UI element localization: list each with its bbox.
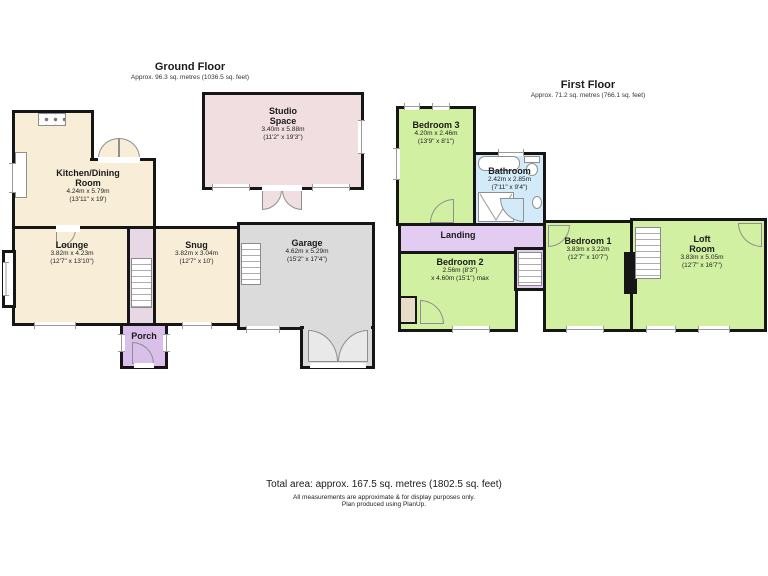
garage-door-opening bbox=[310, 363, 366, 368]
room-imperial-garage: (15'2" x 17'4") bbox=[257, 256, 357, 264]
room-metric-bedroom2: 2.56m (8'3") bbox=[408, 267, 512, 275]
ground-floor-title: Ground Floor Approx. 96.3 sq. metres (10… bbox=[90, 61, 290, 81]
first-floor-subtitle: Approx. 71.2 sq. metres (766.1 sq. feet) bbox=[488, 92, 688, 99]
room-name-landing: Landing bbox=[408, 230, 508, 240]
room-name-bedroom2: Bedroom 2 bbox=[408, 257, 512, 267]
toilet-cistern-icon bbox=[524, 156, 540, 163]
bedroom3-window-left bbox=[393, 148, 400, 180]
room-imperial-bathroom: (7'11" x 9'4") bbox=[473, 184, 546, 192]
kitchen-french-door-right-leaf bbox=[119, 138, 140, 158]
room-label-porch: Porch bbox=[120, 331, 168, 341]
first-floor-staircase bbox=[518, 252, 542, 286]
bedroom2-chimney bbox=[399, 296, 417, 324]
room-name-lounge: Lounge bbox=[20, 240, 124, 250]
loft-window-bottom-1 bbox=[646, 326, 676, 333]
room-name-loft: Loft Room bbox=[682, 234, 722, 254]
room-metric-lounge: 3.82m x 4.23m bbox=[20, 250, 124, 258]
room-label-loft: Loft Room 3.83m x 5.05m (12'7" x 16'7") bbox=[662, 234, 742, 270]
room-label-snug: Snug 3.82m x 3.04m (12'7" x 10') bbox=[153, 240, 240, 266]
kitchen-french-door-left-leaf bbox=[98, 138, 119, 158]
room-metric-bedroom1: 3.83m x 3.22m bbox=[546, 246, 630, 254]
first-floor-title-text: First Floor bbox=[488, 79, 688, 91]
total-area-text: Total area: approx. 167.5 sq. metres (18… bbox=[0, 479, 768, 490]
room-imperial-studio: (11'2" x 19'3") bbox=[233, 134, 333, 142]
room-imperial-snug: (12'7" x 10') bbox=[153, 258, 240, 266]
room-metric-garage: 4.62m x 5.29m bbox=[257, 248, 357, 256]
kitchen-wall-patch bbox=[16, 155, 90, 164]
snug-window-bottom bbox=[182, 322, 212, 329]
ground-floor-title-text: Ground Floor bbox=[90, 61, 290, 73]
loft-window-bottom-2 bbox=[698, 326, 730, 333]
room-metric-bathroom: 2.42m x 2.85m bbox=[473, 176, 546, 184]
studio-door-opening bbox=[262, 185, 302, 191]
studio-door-left-leaf bbox=[262, 190, 282, 210]
bathroom-window-top bbox=[498, 149, 524, 156]
room-name-kitchen: Kitchen/Dining Room bbox=[46, 168, 130, 188]
loft-staircase bbox=[635, 227, 661, 279]
hob-icon bbox=[38, 113, 66, 126]
hall-staircase bbox=[131, 258, 152, 308]
room-metric-snug: 3.82m x 3.04m bbox=[153, 250, 240, 258]
room-metric-loft: 3.83m x 5.05m bbox=[662, 254, 742, 262]
room-name-bedroom1: Bedroom 1 bbox=[546, 236, 630, 246]
studio-window-right bbox=[312, 184, 350, 191]
room-label-bedroom2: Bedroom 2 2.56m (8'3") x 4.60m (15'1") m… bbox=[408, 257, 512, 283]
room-name-bathroom: Bathroom bbox=[473, 166, 546, 176]
sink-icon bbox=[532, 196, 542, 209]
room-imperial-kitchen: (13'11" x 19') bbox=[28, 196, 148, 204]
room-label-landing: Landing bbox=[408, 230, 508, 240]
room-label-bedroom3: Bedroom 3 4.20m x 2.46m (13'9" x 8'1") bbox=[398, 120, 474, 146]
bedroom3-window-top-1 bbox=[404, 103, 420, 110]
footer: Total area: approx. 167.5 sq. metres (18… bbox=[0, 479, 768, 508]
room-name-studio: Studio Space bbox=[259, 106, 307, 126]
room-imperial-bedroom2: x 4.60m (15'1") max bbox=[408, 275, 512, 283]
lounge-doorway-opening bbox=[56, 225, 80, 232]
room-name-bedroom3: Bedroom 3 bbox=[398, 120, 474, 130]
room-label-bedroom1: Bedroom 1 3.83m x 3.22m (12'7" x 10'7") bbox=[546, 236, 630, 262]
garage-window-bottom bbox=[246, 326, 280, 333]
room-label-lounge: Lounge 3.82m x 4.23m (12'7" x 13'10") bbox=[20, 240, 124, 266]
bedroom1-window-bottom bbox=[566, 326, 604, 333]
room-imperial-loft: (12'7" x 16'7") bbox=[662, 262, 742, 270]
room-label-kitchen: Kitchen/Dining Room 4.24m x 5.79m (13'11… bbox=[28, 168, 148, 204]
kitchen-sink-unit-icon bbox=[15, 152, 27, 198]
kitchen-french-door-opening bbox=[98, 157, 140, 163]
studio-window-side bbox=[358, 120, 365, 154]
studio-window-left bbox=[212, 184, 250, 191]
room-label-garage: Garage 4.62m x 5.29m (15'2" x 17'4") bbox=[257, 238, 357, 264]
first-floor-title: First Floor Approx. 71.2 sq. metres (766… bbox=[488, 79, 688, 99]
produced-by-text: Plan produced using PlanUp. bbox=[0, 501, 768, 508]
room-label-bathroom: Bathroom 2.42m x 2.85m (7'11" x 9'4") bbox=[473, 166, 546, 192]
lounge-window-bottom bbox=[34, 322, 76, 329]
bedroom2-window-bottom bbox=[452, 326, 490, 333]
room-name-snug: Snug bbox=[153, 240, 240, 250]
lounge-bay-window bbox=[3, 262, 9, 296]
ground-floor-subtitle: Approx. 96.3 sq. metres (1036.5 sq. feet… bbox=[90, 74, 290, 81]
room-metric-bedroom3: 4.20m x 2.46m bbox=[398, 130, 474, 138]
porch-door-opening bbox=[134, 363, 154, 368]
room-imperial-bedroom3: (13'9" x 8'1") bbox=[398, 138, 474, 146]
studio-door-right-leaf bbox=[282, 190, 302, 210]
room-metric-studio: 3.40m x 5.88m bbox=[233, 126, 333, 134]
room-imperial-lounge: (12'7" x 13'10") bbox=[20, 258, 124, 266]
disclaimer-text: All measurements are approximate & for d… bbox=[0, 494, 768, 501]
room-imperial-bedroom1: (12'7" x 10'7") bbox=[546, 254, 630, 262]
room-metric-kitchen: 4.24m x 5.79m bbox=[28, 188, 148, 196]
bedroom3-window-top-2 bbox=[432, 103, 450, 110]
kitchen-window bbox=[9, 163, 16, 193]
room-name-garage: Garage bbox=[257, 238, 357, 248]
room-label-studio: Studio Space 3.40m x 5.88m (11'2" x 19'3… bbox=[233, 106, 333, 142]
room-name-porch: Porch bbox=[120, 331, 168, 341]
